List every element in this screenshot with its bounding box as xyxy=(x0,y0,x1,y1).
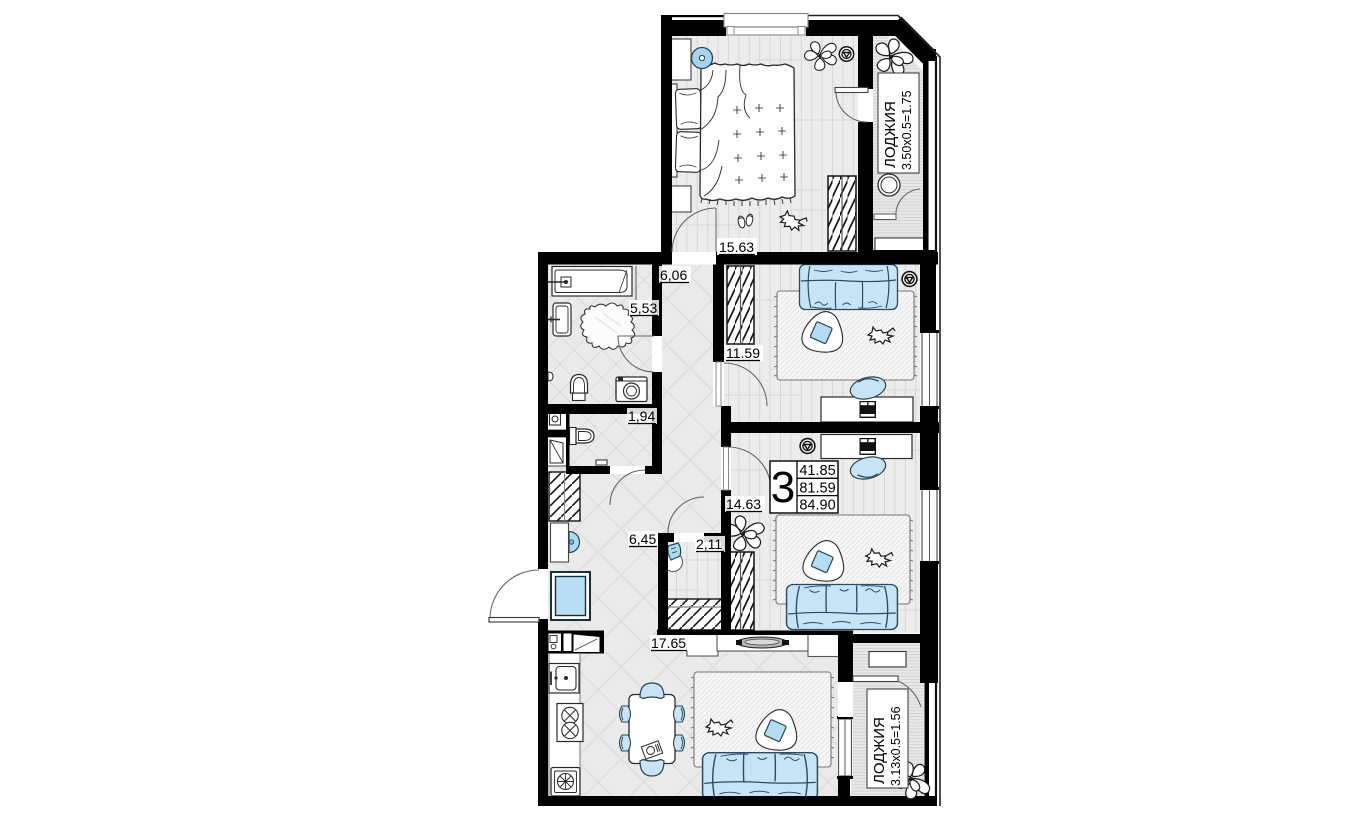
svg-text:6,45: 6,45 xyxy=(629,531,656,547)
svg-text:ЛОДЖИЯ: ЛОДЖИЯ xyxy=(882,101,899,168)
svg-text:11.59: 11.59 xyxy=(726,345,760,361)
svg-text:2,11: 2,11 xyxy=(696,536,722,552)
svg-text:3.13х0.5=1.56: 3.13х0.5=1.56 xyxy=(889,706,903,786)
svg-text:41.85: 41.85 xyxy=(799,463,835,479)
svg-text:17.65: 17.65 xyxy=(651,635,686,651)
svg-text:ЛОДЖИЯ: ЛОДЖИЯ xyxy=(871,717,888,784)
svg-text:84.90: 84.90 xyxy=(799,498,835,514)
svg-text:5,53: 5,53 xyxy=(630,300,657,316)
svg-text:14.63: 14.63 xyxy=(726,496,761,512)
svg-text:6,06: 6,06 xyxy=(660,267,687,283)
svg-text:3.50х0.5=1.75: 3.50х0.5=1.75 xyxy=(900,90,914,170)
svg-text:3: 3 xyxy=(771,463,795,512)
svg-text:15.63: 15.63 xyxy=(719,239,754,255)
svg-text:81.59: 81.59 xyxy=(799,480,835,496)
svg-text:1,94: 1,94 xyxy=(628,408,655,424)
